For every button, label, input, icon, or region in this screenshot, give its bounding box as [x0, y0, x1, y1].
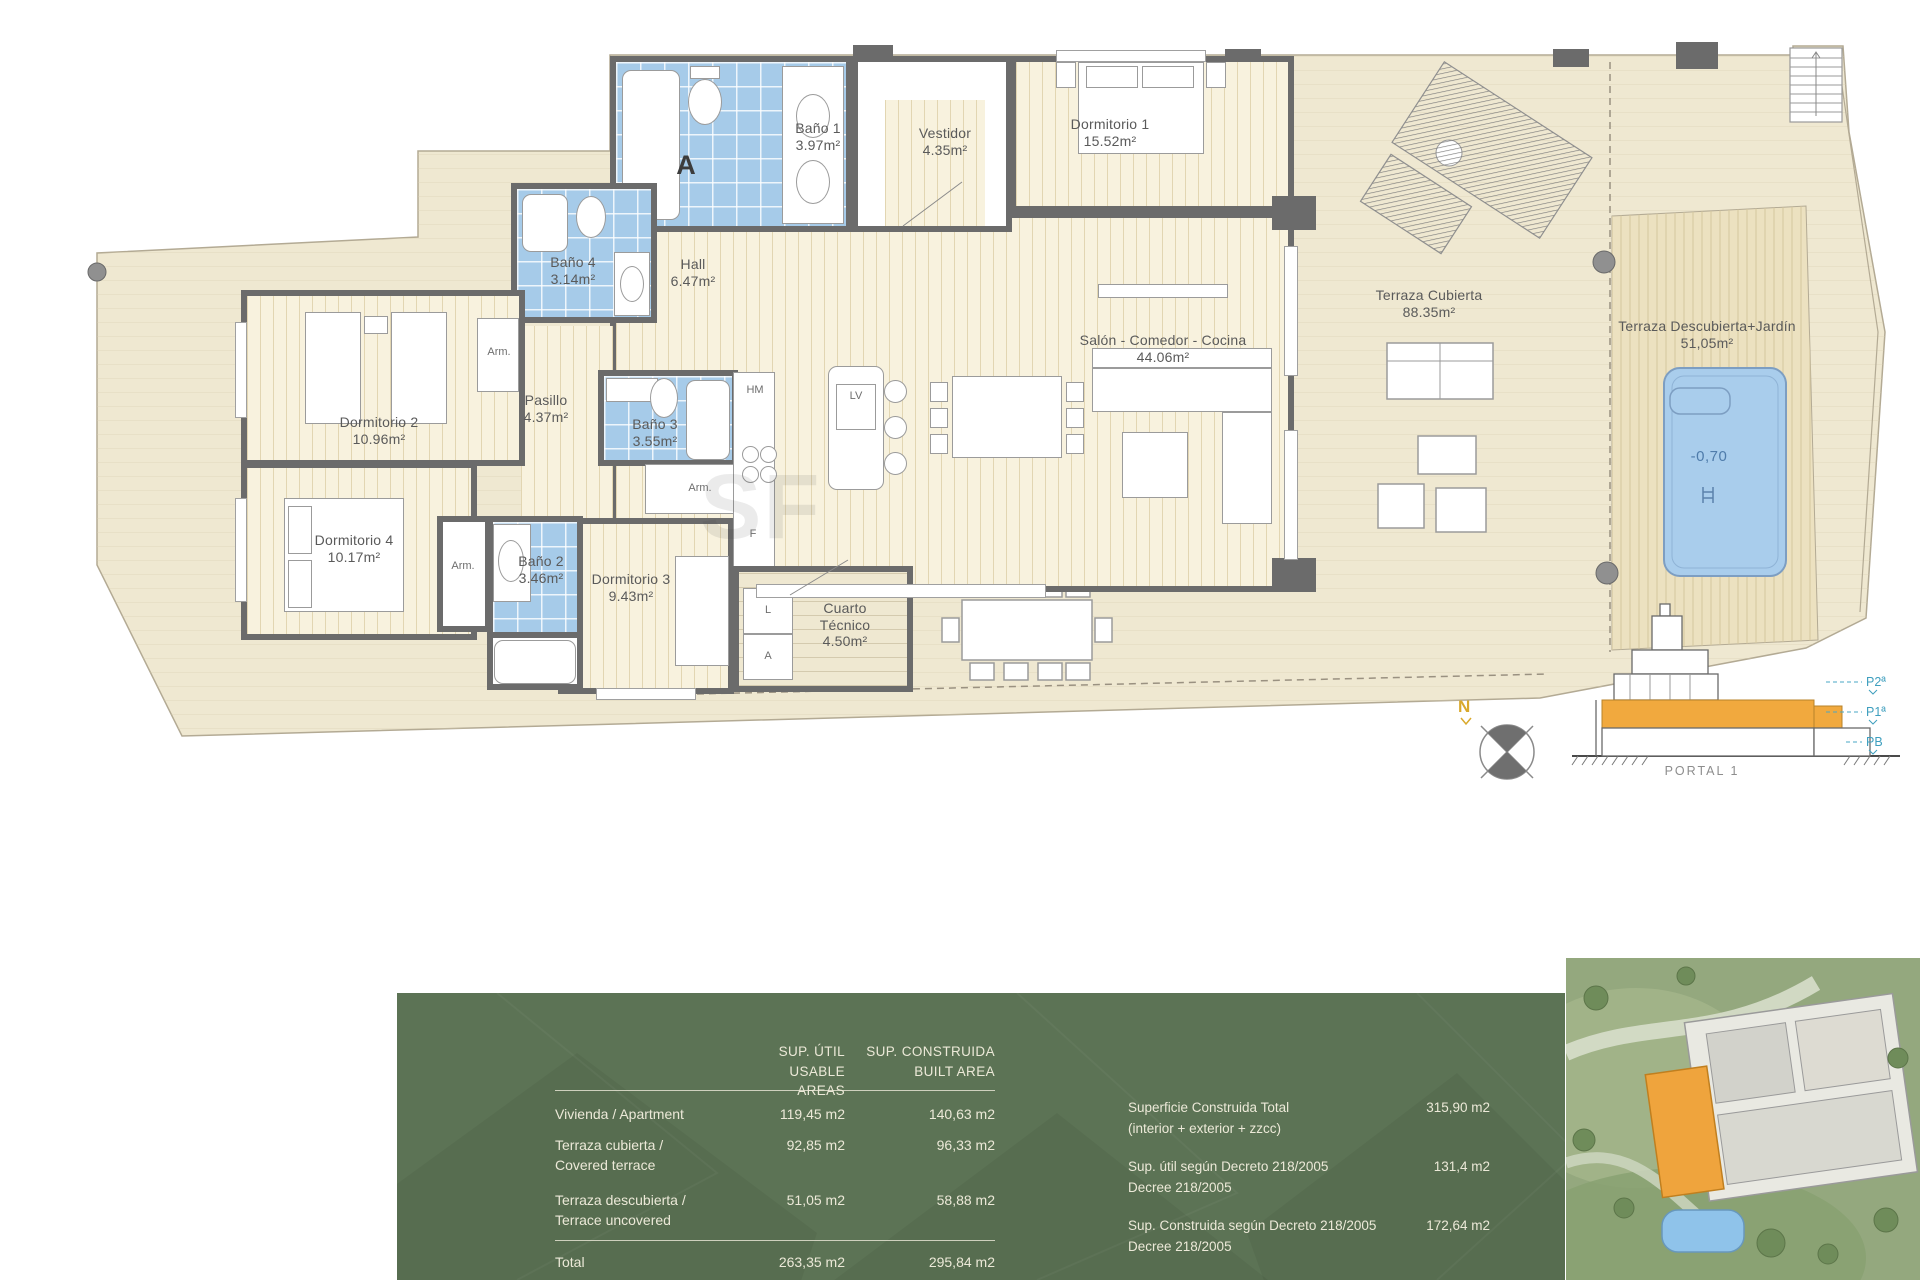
- detail-line1: Sup. útil según Decreto 218/2005: [1128, 1157, 1390, 1178]
- room-area: 88.35m²: [1376, 304, 1483, 321]
- appliance-label-f: F: [750, 528, 757, 540]
- table-total-row: Total 263,35 m2 295,84 m2: [555, 1252, 995, 1272]
- coffee-table: [1122, 432, 1188, 498]
- room-label-pasillo: Pasillo4.37m²: [524, 392, 569, 425]
- chair: [942, 618, 959, 642]
- room-label-cuarto-tecnico: Cuarto Técnico4.50m²: [799, 600, 891, 650]
- closet-column: [437, 516, 491, 632]
- media-unit: [1098, 284, 1228, 298]
- header-usable: SUP. ÚTIL USABLE AREAS: [745, 1042, 845, 1101]
- room-name: Baño 1: [795, 120, 841, 136]
- row-label: Vivienda / Apartment: [555, 1104, 745, 1124]
- room-area: 51,05m²: [1618, 335, 1796, 352]
- table-row: Terraza descubierta / Terrace uncovered …: [555, 1190, 995, 1231]
- room-name: Cuarto Técnico: [820, 600, 870, 633]
- window: [596, 688, 696, 700]
- detail-line1: Superficie Construida Total: [1128, 1098, 1390, 1119]
- closet-label: Arm.: [688, 482, 711, 494]
- site-pool: [1662, 1210, 1744, 1252]
- outdoor-dining-table: [962, 600, 1092, 660]
- stool: [884, 380, 907, 403]
- header-usable-line1: SUP. ÚTIL: [745, 1042, 845, 1062]
- room-name: Vestidor: [919, 125, 971, 141]
- closet-label: Arm.: [487, 346, 510, 358]
- table-row: Terraza cubierta / Covered terrace 92,85…: [555, 1135, 995, 1176]
- bathtub: [494, 640, 576, 684]
- room-name: Baño 3: [632, 416, 678, 432]
- chair: [930, 382, 948, 402]
- chair: [1066, 382, 1084, 402]
- room-area: 4.50m²: [799, 633, 891, 650]
- room-area: 3.14m²: [550, 271, 596, 288]
- window: [1056, 50, 1206, 62]
- outdoor-table: [1418, 436, 1476, 474]
- chair: [930, 408, 948, 428]
- bed: [391, 312, 447, 424]
- room-label-terraza-cubierta: Terraza Cubierta88.35m²: [1376, 287, 1483, 320]
- column-circle: [1596, 562, 1618, 584]
- room-label-vestidor: Vestidor4.35m²: [919, 125, 971, 158]
- room-label-dormitorio1: Dormitorio 115.52m²: [1071, 116, 1150, 149]
- room-label-bano3: Baño 33.55m²: [632, 416, 678, 449]
- row-usable-value: 51,05 m2: [745, 1190, 845, 1231]
- room-label-dormitorio2: Dormitorio 210.96m²: [340, 414, 419, 447]
- shower-tray: [522, 194, 568, 252]
- column-circle: [88, 263, 106, 281]
- room-name: Dormitorio 3: [592, 571, 671, 587]
- outdoor-pouf: [1378, 484, 1424, 528]
- pillar: [1272, 558, 1316, 592]
- total-usable-value: 263,35 m2: [745, 1252, 845, 1272]
- room-name: Terraza Descubierta+Jardín: [1618, 318, 1796, 334]
- room-label-dormitorio3: Dormitorio 39.43m²: [592, 571, 671, 604]
- room-area: 4.37m²: [524, 409, 569, 426]
- toilet: [650, 378, 678, 418]
- room-name: Terraza Cubierta: [1376, 287, 1483, 303]
- sink: [796, 160, 830, 204]
- detail-value: 315,90 m2: [1390, 1098, 1490, 1140]
- stool: [884, 416, 907, 439]
- room-label-bano2: Baño 23.46m²: [518, 553, 564, 586]
- sink: [620, 266, 644, 302]
- vestidor-floor: [885, 100, 985, 226]
- closet-label: Arm.: [451, 560, 474, 572]
- detail-line2: Decree 218/2005: [1128, 1178, 1390, 1199]
- room-name: Dormitorio 4: [315, 532, 394, 548]
- detail-item: Sup. Construida según Decreto 218/2005 D…: [1128, 1216, 1490, 1258]
- chair: [1095, 618, 1112, 642]
- table-row: Vivienda / Apartment 119,45 m2 140,63 m2: [555, 1104, 995, 1124]
- areas-table-header: SUP. ÚTIL USABLE AREAS SUP. CONSTRUIDA B…: [555, 1042, 995, 1101]
- toilet-tank: [690, 66, 720, 79]
- detail-item: Sup. útil según Decreto 218/2005 Decree …: [1128, 1157, 1490, 1199]
- room-name: Hall: [681, 256, 706, 272]
- total-label: Total: [555, 1252, 745, 1272]
- header-built-line1: SUP. CONSTRUIDA: [845, 1042, 995, 1062]
- room-area: 3.46m²: [518, 570, 564, 587]
- chair: [1038, 663, 1062, 680]
- row-built-value: 96,33 m2: [845, 1135, 995, 1176]
- room-area: 3.55m²: [632, 433, 678, 450]
- site-plan-drawing: [1566, 958, 1920, 1280]
- nightstand: [1206, 62, 1226, 88]
- nightstand: [1056, 62, 1076, 88]
- room-label-dormitorio4: Dormitorio 410.17m²: [315, 532, 394, 565]
- chair: [1066, 663, 1090, 680]
- room-name: Pasillo: [525, 392, 568, 408]
- room-label-salon: Salón - Comedor - Cocina44.06m²: [1080, 332, 1247, 365]
- header-usable-line2: USABLE AREAS: [745, 1062, 845, 1101]
- pool-level-label: -0,70: [1691, 448, 1728, 465]
- appliance-label-hm: HM: [746, 384, 763, 396]
- room-area: 10.96m²: [340, 431, 419, 448]
- row-label: Terraza cubierta / Covered terrace: [555, 1135, 745, 1176]
- row-built-value: 140,63 m2: [845, 1104, 995, 1124]
- section-marker-a: A: [676, 150, 696, 181]
- total-built-value: 295,84 m2: [845, 1252, 995, 1272]
- toilet: [576, 196, 606, 238]
- pillar: [1272, 196, 1316, 230]
- detail-line1: Sup. Construida según Decreto 218/2005: [1128, 1216, 1390, 1237]
- detail-value: 131,4 m2: [1390, 1157, 1490, 1199]
- room-area: 9.43m²: [592, 588, 671, 605]
- room-area: 15.52m²: [1071, 133, 1150, 150]
- nightstand: [364, 316, 388, 334]
- sliding-door: [756, 584, 1046, 598]
- room-label-terraza-descubierta: Terraza Descubierta+Jardín51,05m²: [1618, 318, 1796, 351]
- chair: [1004, 663, 1028, 680]
- stairs: [1790, 48, 1842, 122]
- chair: [930, 434, 948, 454]
- sofa-chaise: [1222, 412, 1272, 524]
- window: [235, 322, 247, 418]
- row-usable-value: 119,45 m2: [745, 1104, 845, 1124]
- pillow: [288, 560, 312, 608]
- table-divider: [555, 1240, 995, 1241]
- pillar: [1676, 42, 1718, 69]
- areas-table: SUP. ÚTIL USABLE AREAS SUP. CONSTRUIDA B…: [555, 1042, 995, 1277]
- room-area: 6.47m²: [671, 273, 716, 290]
- watermark-logo: SF: [700, 455, 822, 560]
- pillow: [1142, 66, 1194, 88]
- bed: [305, 312, 361, 424]
- detail-item: Superficie Construida Total (interior + …: [1128, 1098, 1490, 1140]
- room-label-bano1: Baño 13.97m²: [795, 120, 841, 153]
- detail-value: 172,64 m2: [1390, 1216, 1490, 1258]
- sofa-seat: [1092, 368, 1272, 412]
- appliance-label-a: A: [764, 650, 771, 662]
- room-name: Salón - Comedor - Cocina: [1080, 332, 1247, 348]
- room-name: Dormitorio 1: [1071, 116, 1150, 132]
- toilet: [688, 79, 722, 125]
- column-circle: [1593, 251, 1615, 273]
- outdoor-pouf: [1436, 488, 1486, 532]
- detail-line2: (interior + exterior + zzcc): [1128, 1119, 1390, 1140]
- chair: [970, 663, 994, 680]
- row-usable-value: 92,85 m2: [745, 1135, 845, 1176]
- chair: [1066, 434, 1084, 454]
- room-label-hall: Hall6.47m²: [671, 256, 716, 289]
- built-area-details: Superficie Construida Total (interior + …: [1128, 1098, 1490, 1275]
- room-area: 4.35m²: [919, 142, 971, 159]
- appliance-label-l: L: [765, 604, 771, 616]
- areas-summary-panel: SUP. ÚTIL USABLE AREAS SUP. CONSTRUIDA B…: [397, 993, 1565, 1280]
- room-name: Baño 4: [550, 254, 596, 270]
- header-built-line2: BUILT AREA: [845, 1062, 995, 1082]
- header-built: SUP. CONSTRUIDA BUILT AREA: [845, 1042, 995, 1101]
- room-area: 44.06m²: [1080, 349, 1247, 366]
- room-name: Dormitorio 2: [340, 414, 419, 430]
- row-built-value: 58,88 m2: [845, 1190, 995, 1231]
- chair: [1066, 408, 1084, 428]
- pillow: [1086, 66, 1138, 88]
- bed: [675, 556, 729, 666]
- window: [1284, 246, 1298, 376]
- pillow: [288, 506, 312, 554]
- room-name: Baño 2: [518, 553, 564, 569]
- pillar: [1553, 49, 1589, 67]
- row-label: Terraza descubierta / Terrace uncovered: [555, 1190, 745, 1231]
- bathtub: [686, 380, 730, 460]
- room-area: 3.97m²: [795, 137, 841, 154]
- appliance-label-lv: LV: [850, 390, 863, 402]
- floor-plan-sheet: SF Baño 13.97m² Vestidor4.35m² Dormitori…: [0, 0, 1920, 1280]
- window: [235, 498, 247, 602]
- room-area: 10.17m²: [315, 549, 394, 566]
- room-label-bano4: Baño 43.14m²: [550, 254, 596, 287]
- site-plan-thumbnail: [1566, 958, 1920, 1280]
- table-divider: [555, 1090, 995, 1091]
- window: [1284, 430, 1298, 560]
- pool: [1664, 368, 1786, 576]
- stool: [884, 452, 907, 475]
- dining-table: [952, 376, 1062, 458]
- detail-line2: Decree 218/2005: [1128, 1237, 1390, 1258]
